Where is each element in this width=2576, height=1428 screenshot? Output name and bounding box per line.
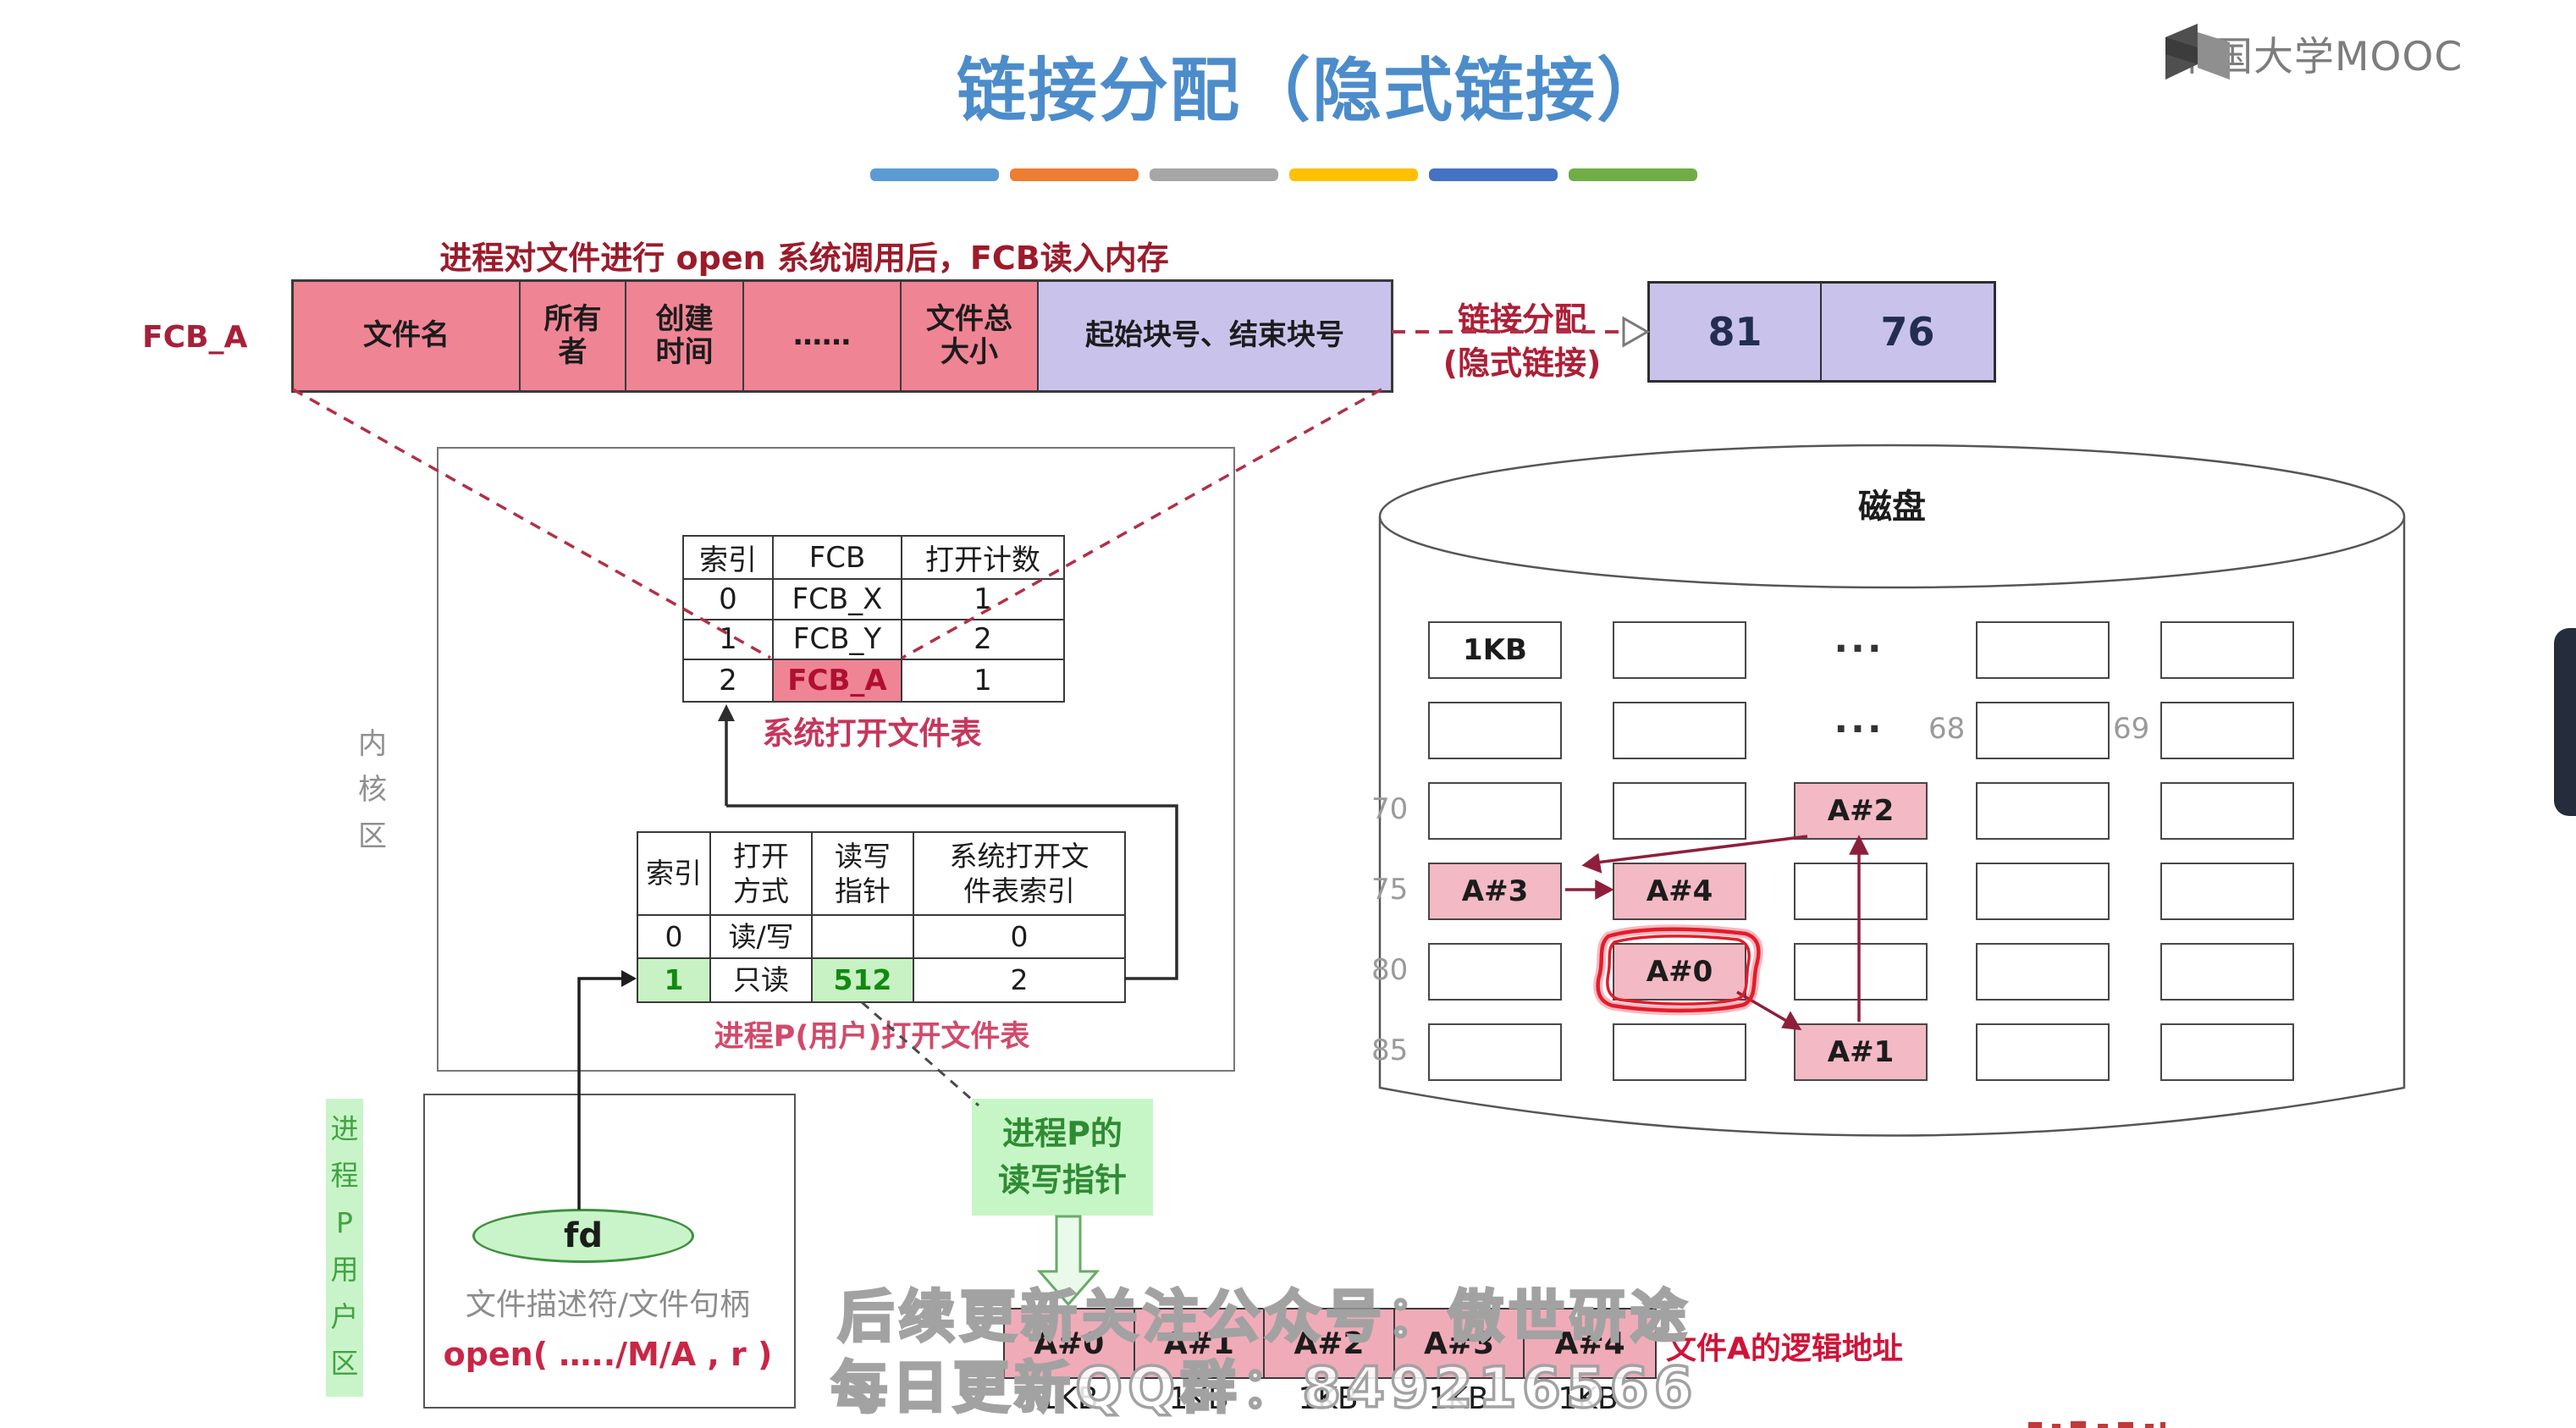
disk-block [1613,1023,1746,1081]
table-cell: 0 [684,580,774,620]
proc-row1-pointer-highlight: 512 [813,959,914,1002]
proc-header-pointer: 读写 指针 [813,833,914,916]
disk-block [2160,702,2294,759]
chain-block-76: 76 [1822,284,1994,380]
disk-ellipsis-row1: ... [1825,618,1893,661]
disk-block [2160,782,2294,840]
disk-block-a4-label: A#4 [1614,864,1745,918]
side-panel-handle[interactable] [2554,628,2576,816]
mooc-book-icon [2164,19,2231,83]
disk-block [1794,943,1928,1001]
disk-block-a0-label: A#0 [1614,945,1745,999]
accent-bar-blue [870,168,999,181]
disk-block-a3: A#3 [1428,863,1562,920]
disk-block [1613,702,1746,759]
disk-block [2160,943,2294,1001]
chain-block-81: 81 [1650,284,1822,380]
disk-block [1613,782,1746,840]
table-cell: 2 [914,959,1124,1002]
open-call-text: open( …../M/A , r ) [427,1336,788,1373]
slide: 链接分配（隐式链接） 中国大学MOOC 进程对文件进行 open 系统调用后，F… [0,0,2576,1428]
fcb-a-highlight-cell: FCB_A [774,660,902,701]
table-cell: 读/写 [711,916,813,959]
table-cell: FCB_X [774,580,902,620]
disk-block-a4: A#4 [1613,863,1746,920]
table-cell: 0 [914,916,1124,959]
fcb-cell-owner: 所有 者 [521,282,626,390]
disk-block [1976,782,2110,840]
disk-block-a1-label: A#1 [1795,1025,1926,1079]
disk-block [1613,621,1746,679]
table-cell: 只读 [711,959,813,1002]
disk-block [1976,1023,2110,1081]
disk-block-a0: A#0 [1613,943,1746,1001]
sys-header-count: 打开计数 [902,537,1063,580]
kernel-area-label: 内 核 区 [356,721,389,859]
process-open-file-table: 索引 打开 方式 读写 指针 系统打开文 件表索引 0 读/写 0 1 只读 5… [637,831,1126,1003]
link-alloc-label-line2: (隐式链接) [1431,337,1613,383]
rw-pointer-label: 进程P的 读写指针 [972,1099,1153,1216]
disk-block-1kb-label: 1KB [1430,623,1560,677]
system-open-file-table: 索引 FCB 打开计数 0 FCB_X 1 1 FCB_Y 2 2 FCB_A … [682,535,1065,703]
disk-block-a2: A#2 [1794,782,1928,840]
process-open-file-table-caption: 进程P(用户)打开文件表 [652,1012,1092,1056]
disk-block [1794,863,1928,920]
fcb-a-label: FCB_A [142,320,247,355]
table-cell: 0 [638,916,711,959]
process-user-area-strip: 进 程 P 用 户 区 [326,1099,363,1397]
watermark-line2: 每日更新QQ群：849216566 [831,1343,1698,1424]
fcb-cell-blocknums: 起始块号、结束块号 [1039,282,1391,390]
table-cell: 2 [684,660,774,701]
proc-row1-index-highlight: 1 [638,959,711,1002]
logical-address-caption: 文件A的逻辑地址 [1666,1324,1903,1368]
disk-block [2160,863,2294,920]
sys-header-fcb: FCB [774,537,902,580]
disk-block [2160,1023,2294,1081]
disk-block [1428,1023,1562,1081]
disk-block [1428,943,1562,1001]
process-user-area-label: 进 程 P 用 户 区 [326,1105,363,1387]
disk-row-label-85: 85 [1371,1034,1408,1067]
proc-header-mode: 打开 方式 [711,833,813,916]
disk-block-a3-label: A#3 [1430,864,1560,918]
table-cell: 1 [902,580,1063,620]
disk-row-label-70: 70 [1371,792,1408,826]
fcb-cell-ctime: 创建 时间 [626,282,744,390]
disk-block-a1: A#1 [1794,1023,1928,1081]
link-alloc-label-line1: 链接分配 [1431,293,1613,339]
table-cell: 2 [902,620,1063,661]
disk-block [1976,621,2110,679]
proc-header-sysindex: 系统打开文 件表索引 [914,833,1124,916]
disk-ellipsis-row2: ... [1825,698,1893,742]
system-open-file-table-caption: 系统打开文件表 [682,708,1062,753]
disk-row-label-75: 75 [1371,873,1408,907]
fcb-table: 文件名 所有 者 创建 时间 …… 文件总 大小 起始块号、结束块号 [291,279,1393,393]
disk-block [2160,621,2294,679]
disk-title: 磁盘 [1807,479,1977,528]
page-title: 链接分配（隐式链接） [863,34,1761,135]
disk-block [1976,863,2110,920]
disk-block [1428,782,1562,840]
table-cell: 1 [684,620,774,661]
chain-blocks: 81 76 [1647,281,1996,383]
disk-row-label-68: 68 [1928,712,1965,746]
fd-label: fd [564,1216,603,1255]
fcb-cell-size: 文件总 大小 [902,282,1039,390]
fcb-cell-filename: 文件名 [294,282,521,390]
disk-block [1976,702,2110,759]
brand-logo: 中国大学MOOC [2164,19,2562,86]
file-descriptor-label: 文件描述符/文件句柄 [427,1280,788,1324]
accent-bar-darkblue [1429,168,1558,181]
fcb-caption: 进程对文件进行 open 系统调用后，FCB读入内存 [381,232,1227,278]
table-cell: 1 [902,660,1063,701]
table-cell [813,916,914,959]
fcb-cell-more: …… [744,282,902,390]
fd-ellipse: fd [472,1209,694,1263]
disk-block [1976,943,2110,1001]
disk-row-label-80: 80 [1371,953,1408,987]
accent-bar-gray [1150,168,1278,181]
disk-block [1428,702,1562,759]
sys-header-index: 索引 [684,537,774,580]
table-cell: FCB_Y [774,620,902,661]
watermark-line1: 后续更新关注公众号：傲世研途 [838,1271,1691,1353]
disk-block-1kb: 1KB [1428,621,1562,679]
accent-bar-yellow [1289,168,1418,181]
accent-bar-orange [1010,168,1139,181]
disk-row-label-69: 69 [2113,712,2149,746]
proc-header-index: 索引 [638,833,711,916]
disk-block-a2-label: A#2 [1795,784,1926,838]
accent-bar-green [1569,168,1697,181]
